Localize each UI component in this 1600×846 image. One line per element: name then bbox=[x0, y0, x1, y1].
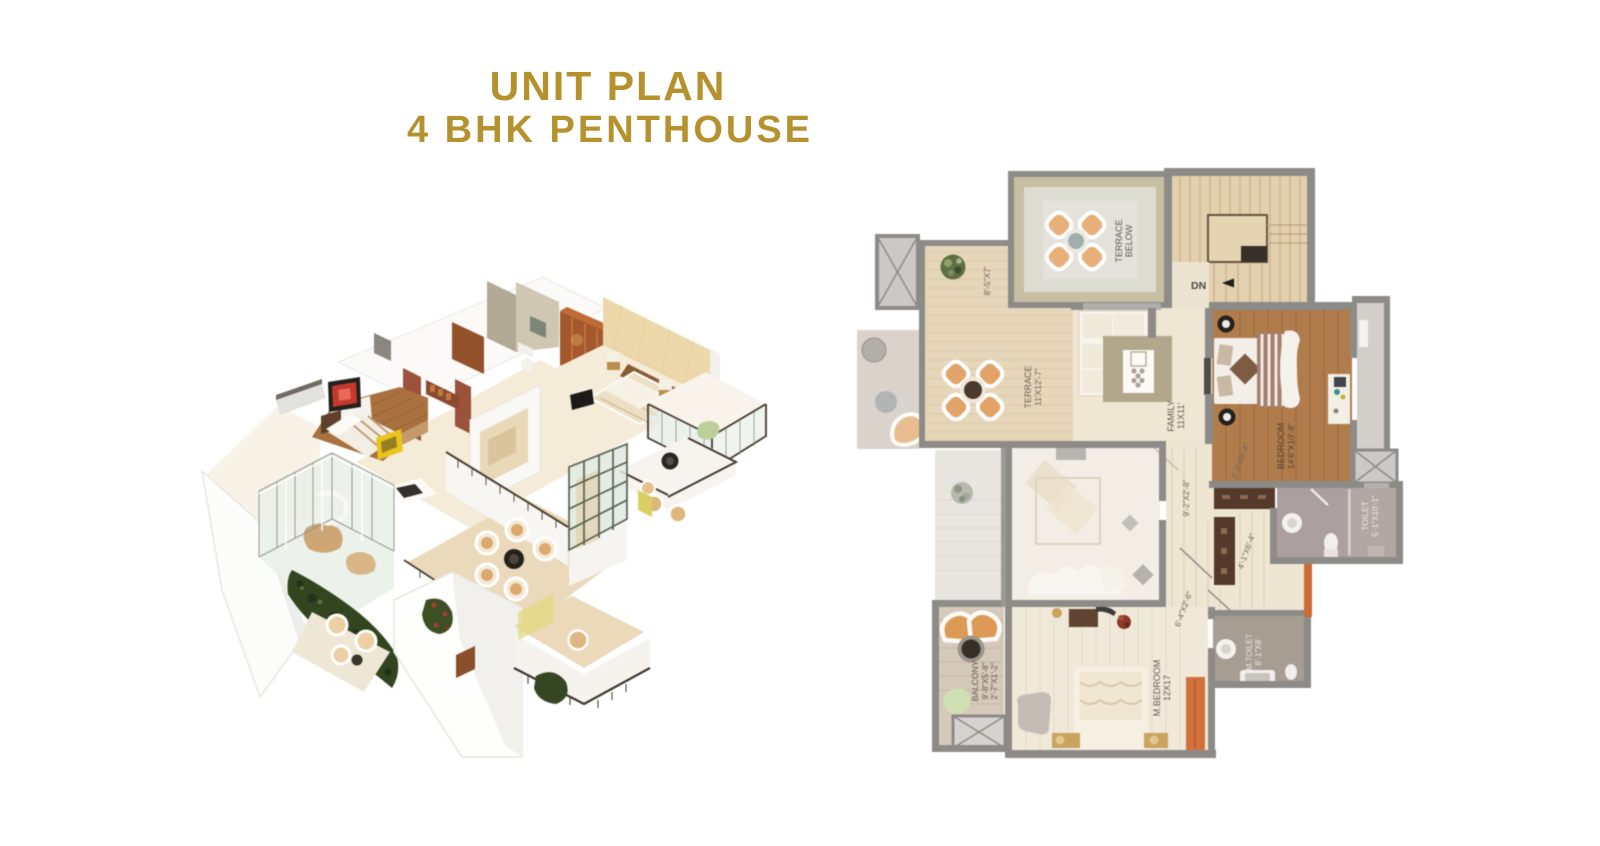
svg-text:TERRACE: TERRACE bbox=[1023, 365, 1033, 408]
svg-text:TOILET: TOILET bbox=[1360, 501, 1370, 531]
svg-text:UNIT PLAN: UNIT PLAN bbox=[490, 63, 727, 109]
svg-text:M.BEDROOM: M.BEDROOM bbox=[1152, 660, 1162, 717]
svg-text:14'6"X10'-8": 14'6"X10'-8" bbox=[1286, 423, 1296, 469]
svg-text:12X17: 12X17 bbox=[1162, 675, 1172, 701]
svg-text:9'-8"X5'-8": 9'-8"X5'-8" bbox=[981, 662, 990, 699]
svg-text:BELOW: BELOW bbox=[1124, 224, 1134, 257]
svg-text:5'-1"X10'-1": 5'-1"X10'-1" bbox=[1371, 495, 1380, 537]
svg-text:11X11': 11X11' bbox=[1176, 403, 1186, 430]
svg-text:M.TOILET: M.TOILET bbox=[1245, 634, 1254, 671]
svg-text:9'-2"X2'-8": 9'-2"X2'-8" bbox=[1182, 479, 1191, 516]
svg-text:4 BHK PENTHOUSE: 4 BHK PENTHOUSE bbox=[407, 109, 813, 151]
svg-text:8'-5"X7': 8'-5"X7' bbox=[982, 266, 992, 295]
svg-text:TERRACE: TERRACE bbox=[1114, 219, 1124, 262]
svg-text:DN: DN bbox=[1191, 280, 1206, 292]
svg-text:8'-1"X8': 8'-1"X8' bbox=[1254, 638, 1263, 666]
svg-text:11'X12'-7": 11'X12'-7" bbox=[1033, 368, 1043, 406]
svg-text:BEDROOM: BEDROOM bbox=[1276, 423, 1286, 470]
svg-text:FAMILY: FAMILY bbox=[1166, 400, 1176, 431]
svg-text:BALCONY: BALCONY bbox=[970, 660, 980, 701]
svg-text:2'-7"X1'-2": 2'-7"X1'-2" bbox=[990, 662, 999, 699]
